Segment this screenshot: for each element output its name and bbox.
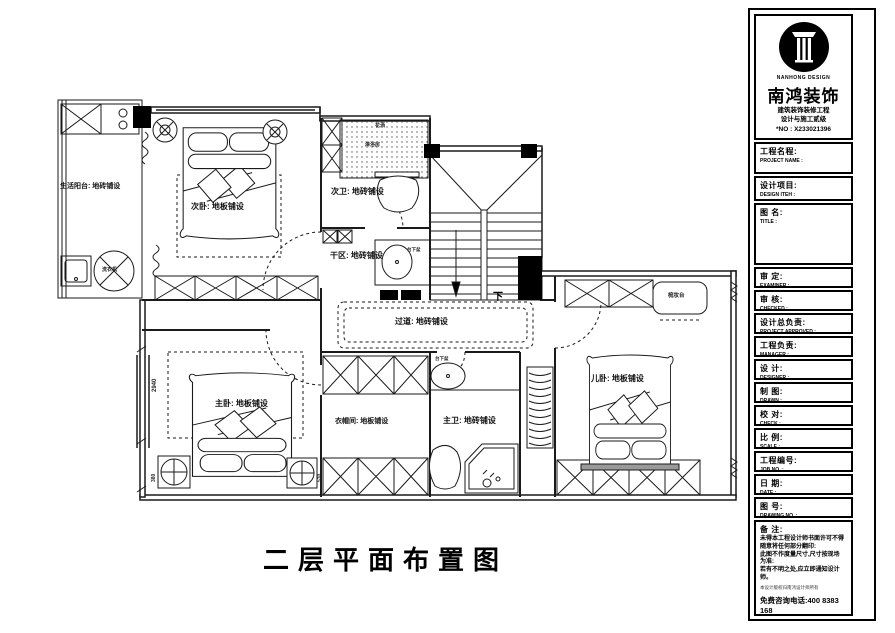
plan-geometry (58, 100, 737, 500)
field-label-en: JOB NO. : (760, 467, 847, 473)
remarks-title: 备 注: (760, 524, 847, 535)
field-project-approved: 设计总负责: PROJECT APPROVED : (754, 313, 853, 334)
bed-base (581, 464, 679, 470)
field-examiner: 审 定: EXAMINER : (754, 267, 853, 288)
label-basin-2: 台下盆 (435, 357, 449, 362)
field-manager: 工程负责: MANAGER : (754, 336, 853, 357)
field-label-zh: 设计总负责: (760, 317, 847, 328)
field-label-zh: 审 核: (760, 294, 847, 305)
field-label-zh: 图 号: (760, 501, 847, 512)
bed-master (189, 373, 294, 477)
hotline-number: 免费咨询电话:400 8383 168 (760, 595, 847, 615)
field-label-en: DESIGNER : (760, 375, 847, 381)
label-dressing-table: 梳妆台 (668, 294, 685, 300)
dimension-2940: 2940 (152, 379, 158, 392)
title-block-column: NANHONG DESIGN 南鸿装饰 建筑装饰装修工程 设计与施工贰级 *NO… (754, 14, 853, 618)
field-label-en: DATE : (760, 490, 847, 496)
field-drawn: 制 图: DRAWN : (754, 382, 853, 403)
field-label-zh: 审 定: (760, 271, 847, 282)
room-label-corridor: 过道: 地砖铺设 (395, 318, 448, 326)
field-label-zh: 设计项目: (760, 180, 847, 191)
remarks-line: 随意将任何部分翻印: (760, 544, 847, 552)
field-label-en: TITLE : (760, 219, 847, 225)
field-label-zh: 图 名: (760, 207, 847, 218)
field-job-no: 工程编号: JOB NO. : (754, 451, 853, 472)
field-label-en: MANAGER : (760, 352, 847, 358)
field-designer: 设 计: DESIGNER : (754, 359, 853, 380)
field-label-zh: 工程负责: (760, 340, 847, 351)
field-label-zh: 工程编号: (760, 455, 847, 466)
label-shower-head: 花洒 (375, 124, 385, 129)
company-logo-icon (779, 22, 829, 72)
bathroom1-fixtures (429, 363, 520, 493)
remarks-line: 若有不明之处,应立即通知设计 (760, 567, 847, 575)
field-label-zh: 制 图: (760, 386, 847, 397)
field-drawing-no: 图 号: DRAWING NO. : (754, 497, 853, 518)
field-label-en: DRAWN : (760, 398, 847, 404)
field-date: 日 期: DATE : (754, 474, 853, 495)
floorplan-linework (25, 60, 740, 605)
field-checked: 审 核: CHECKED : (754, 290, 853, 311)
field-design-item: 设计项目: DESIGN ITEH : (754, 176, 853, 201)
plan-title: 二层平面布置图 (263, 540, 508, 577)
bed-secondary (180, 128, 279, 239)
room-label-closet: 衣帽间: 地板铺设 (335, 418, 388, 425)
field-label-zh: 校 对: (760, 409, 847, 420)
field-label-zh: 比 例: (760, 432, 847, 443)
room-label-dry-area: 干区: 地砖铺设 (330, 252, 383, 260)
field-label-zh: 设 计: (760, 363, 847, 374)
bathroom2-fixtures (340, 120, 430, 285)
field-label-en: PROJECT NAME : (760, 158, 847, 164)
field-label-zh: 工程名程: (760, 146, 847, 157)
balcony (58, 100, 142, 298)
room-label-balcony: 生活阳台: 地砖铺设 (60, 183, 120, 190)
label-washing-machine: 洗衣机 (102, 268, 117, 273)
room-label-bedroom2: 次卧: 地板铺设 (191, 203, 244, 211)
bed-kids (587, 355, 673, 464)
field-label-en: DESIGN ITEH : (760, 192, 847, 198)
floor-plan: 生活阳台: 地砖铺设 次卧: 地板铺设 次卫: 地砖铺设 干区: 地砖铺设 过道… (25, 60, 740, 605)
company-qualification-1: 建筑装饰装修工程 (760, 107, 847, 116)
field-scale: 比 例: SCALE : (754, 428, 853, 449)
field-project-name: 工程名程: PROJECT NAME : (754, 142, 853, 174)
field-check: 校 对: CHECK : (754, 405, 853, 426)
dimension-380: 380 (151, 474, 157, 482)
room-label-bath1: 主卫: 地砖铺设 (443, 417, 496, 425)
label-shower-room: 淋浴房 (365, 143, 380, 148)
dimension-530: 530 (317, 474, 323, 482)
drawing-sheet: 生活阳台: 地砖铺设 次卧: 地板铺设 次卫: 地砖铺设 干区: 地砖铺设 过道… (0, 0, 895, 633)
label-basin-1: 台下盆 (407, 248, 421, 253)
stair-down-label: 下 (493, 293, 503, 303)
field-label-en: SCALE : (760, 444, 847, 450)
field-label-zh: 日 期: (760, 478, 847, 489)
remarks-box: 备 注: 未得本工程设计师书面许可不得 随意将任何部分翻印: 此图不作度量尺寸,… (754, 520, 853, 616)
towel-rack (527, 367, 553, 448)
company-name-en: NANHONG DESIGN (760, 75, 847, 81)
remarks-line: 师。 (760, 575, 847, 583)
field-label-en: EXAMINER : (760, 283, 847, 289)
company-name-zh: 南鸿装饰 (760, 82, 847, 107)
room-label-master: 主卧: 地板铺设 (215, 400, 268, 408)
room-label-kids: 儿卧: 地板铺设 (591, 375, 644, 383)
title-block: NANHONG DESIGN 南鸿装饰 建筑装饰装修工程 设计与施工贰级 *NO… (748, 8, 876, 621)
company-header: NANHONG DESIGN 南鸿装饰 建筑装饰装修工程 设计与施工贰级 *NO… (754, 14, 853, 140)
field-label-en: CHECKED : (760, 306, 847, 312)
remarks-fine-print: 本设计版权归南鸿设计师所有 (760, 585, 847, 591)
field-label-en: PROJECT APPROVED : (760, 329, 847, 335)
company-license-no: *NO : X233021396 (760, 126, 847, 133)
field-label-en: DRAWING NO. : (760, 513, 847, 519)
company-qualification-2: 设计与施工贰级 (760, 116, 847, 125)
room-label-bath2: 次卫: 地砖铺设 (331, 188, 384, 196)
field-drawing-name: 图 名: TITLE : (754, 203, 853, 265)
remarks-line: 未得本工程设计师书面许可不得 (760, 536, 847, 544)
field-label-en: CHECK : (760, 421, 847, 427)
